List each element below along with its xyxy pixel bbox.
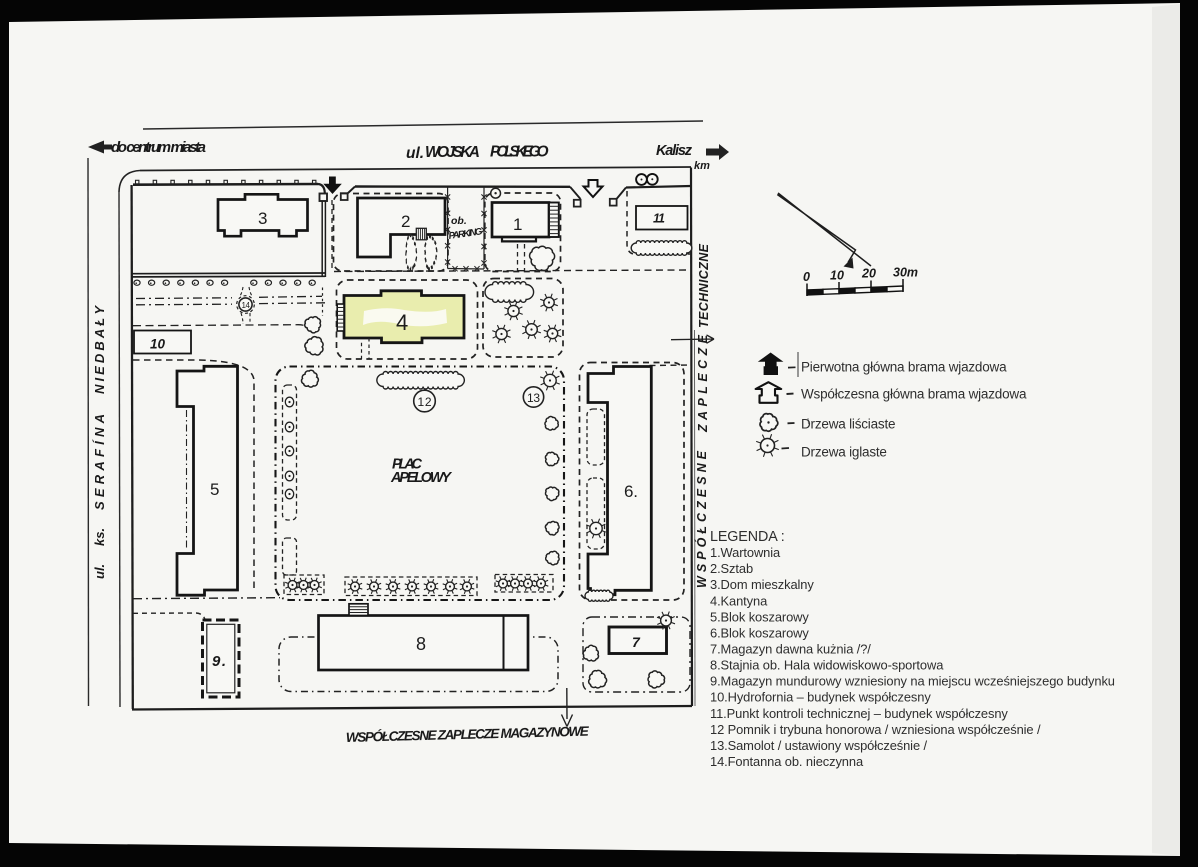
svg-text:14: 14 [242,301,251,310]
svg-text:5: 5 [210,480,219,499]
svg-text:ul.: ul. [92,564,107,579]
svg-text:do centrum miasta: do centrum miasta [111,139,206,156]
svg-text:3.Dom mieszkalny: 3.Dom mieszkalny [710,577,814,592]
svg-text:10: 10 [830,269,844,283]
svg-text:20: 20 [861,267,876,281]
svg-text:km: km [694,160,710,172]
svg-text:1: 1 [513,215,522,234]
svg-text:WSPÓŁCZESNE: WSPÓŁCZESNE [694,450,709,588]
svg-text:6.: 6. [624,482,638,501]
svg-text:6.Blok koszarowy: 6.Blok koszarowy [710,625,809,640]
svg-text:8.Stajnia ob. Hala widowiskowo: 8.Stajnia ob. Hala widowiskowo-sportowa [710,658,944,673]
svg-text:2.Sztab: 2.Sztab [710,561,753,576]
svg-text:10.Hydrofornia – budynek współ: 10.Hydrofornia – budynek współczesny [710,690,931,705]
svg-text:4: 4 [396,310,408,335]
svg-text:POLSKIEGO: POLSKIEGO [490,144,549,161]
svg-text:3: 3 [258,209,267,228]
svg-text:Drzewa liściaste: Drzewa liściaste [801,417,895,432]
svg-text:TECHNICZNE: TECHNICZNE [697,243,711,328]
svg-text:Pierwotna główna brama wjazdow: Pierwotna główna brama wjazdowa [801,360,1007,375]
svg-text:WOJSKA: WOJSKA [425,144,481,161]
svg-text:12 Pomnik i trybuna honorowa /: 12 Pomnik i trybuna honorowa / wzniesion… [710,722,1041,737]
svg-text:11: 11 [653,212,665,226]
svg-text:5.Blok koszarowy: 5.Blok koszarowy [710,609,809,624]
svg-text:4.Kantyna: 4.Kantyna [710,593,768,608]
svg-text:13.Samolot / ustawiony współcz: 13.Samolot / ustawiony współcześnie / [710,738,928,753]
svg-text:Drzewa iglaste: Drzewa iglaste [801,445,887,460]
svg-text:SERAFÍNA: SERAFÍNA [92,413,107,510]
svg-text:9.: 9. [212,653,226,670]
svg-text:8: 8 [416,634,426,654]
svg-text:9.Magazyn mundurowy wzniesion: 9.Magazyn mundurowy wzniesiony na miejsc… [710,674,1115,689]
svg-text:0: 0 [803,270,810,284]
svg-text:2: 2 [401,212,410,231]
svg-text:Kalisz: Kalisz [656,143,693,159]
svg-text:Współczesna główna brama wjazd: Współczesna główna brama wjazdowa [801,387,1027,402]
svg-text:1.Wartownia: 1.Wartownia [710,545,781,560]
svg-text:APELOWY: APELOWY [390,470,452,486]
svg-text:7.Magazyn dawna kużnia /?/: 7.Magazyn dawna kużnia /?/ [710,642,871,657]
svg-text:13: 13 [527,391,540,405]
svg-text:7: 7 [632,634,641,650]
svg-text:ob.: ob. [451,215,467,227]
svg-text:30m: 30m [893,266,918,280]
svg-text:NIEDBAŁY: NIEDBAŁY [92,305,107,394]
svg-text:11.Punkt kontroli technicznej: 11.Punkt kontroli technicznej – budynek … [710,706,1008,721]
svg-text:14.Fontanna ob. nieczynna: 14.Fontanna ob. nieczynna [710,754,864,769]
svg-text:ul.: ul. [406,145,424,162]
svg-text:10: 10 [150,337,165,352]
svg-text:LEGENDA :: LEGENDA : [710,529,785,545]
svg-text:12: 12 [418,395,432,409]
svg-text:ks.: ks. [92,528,107,546]
